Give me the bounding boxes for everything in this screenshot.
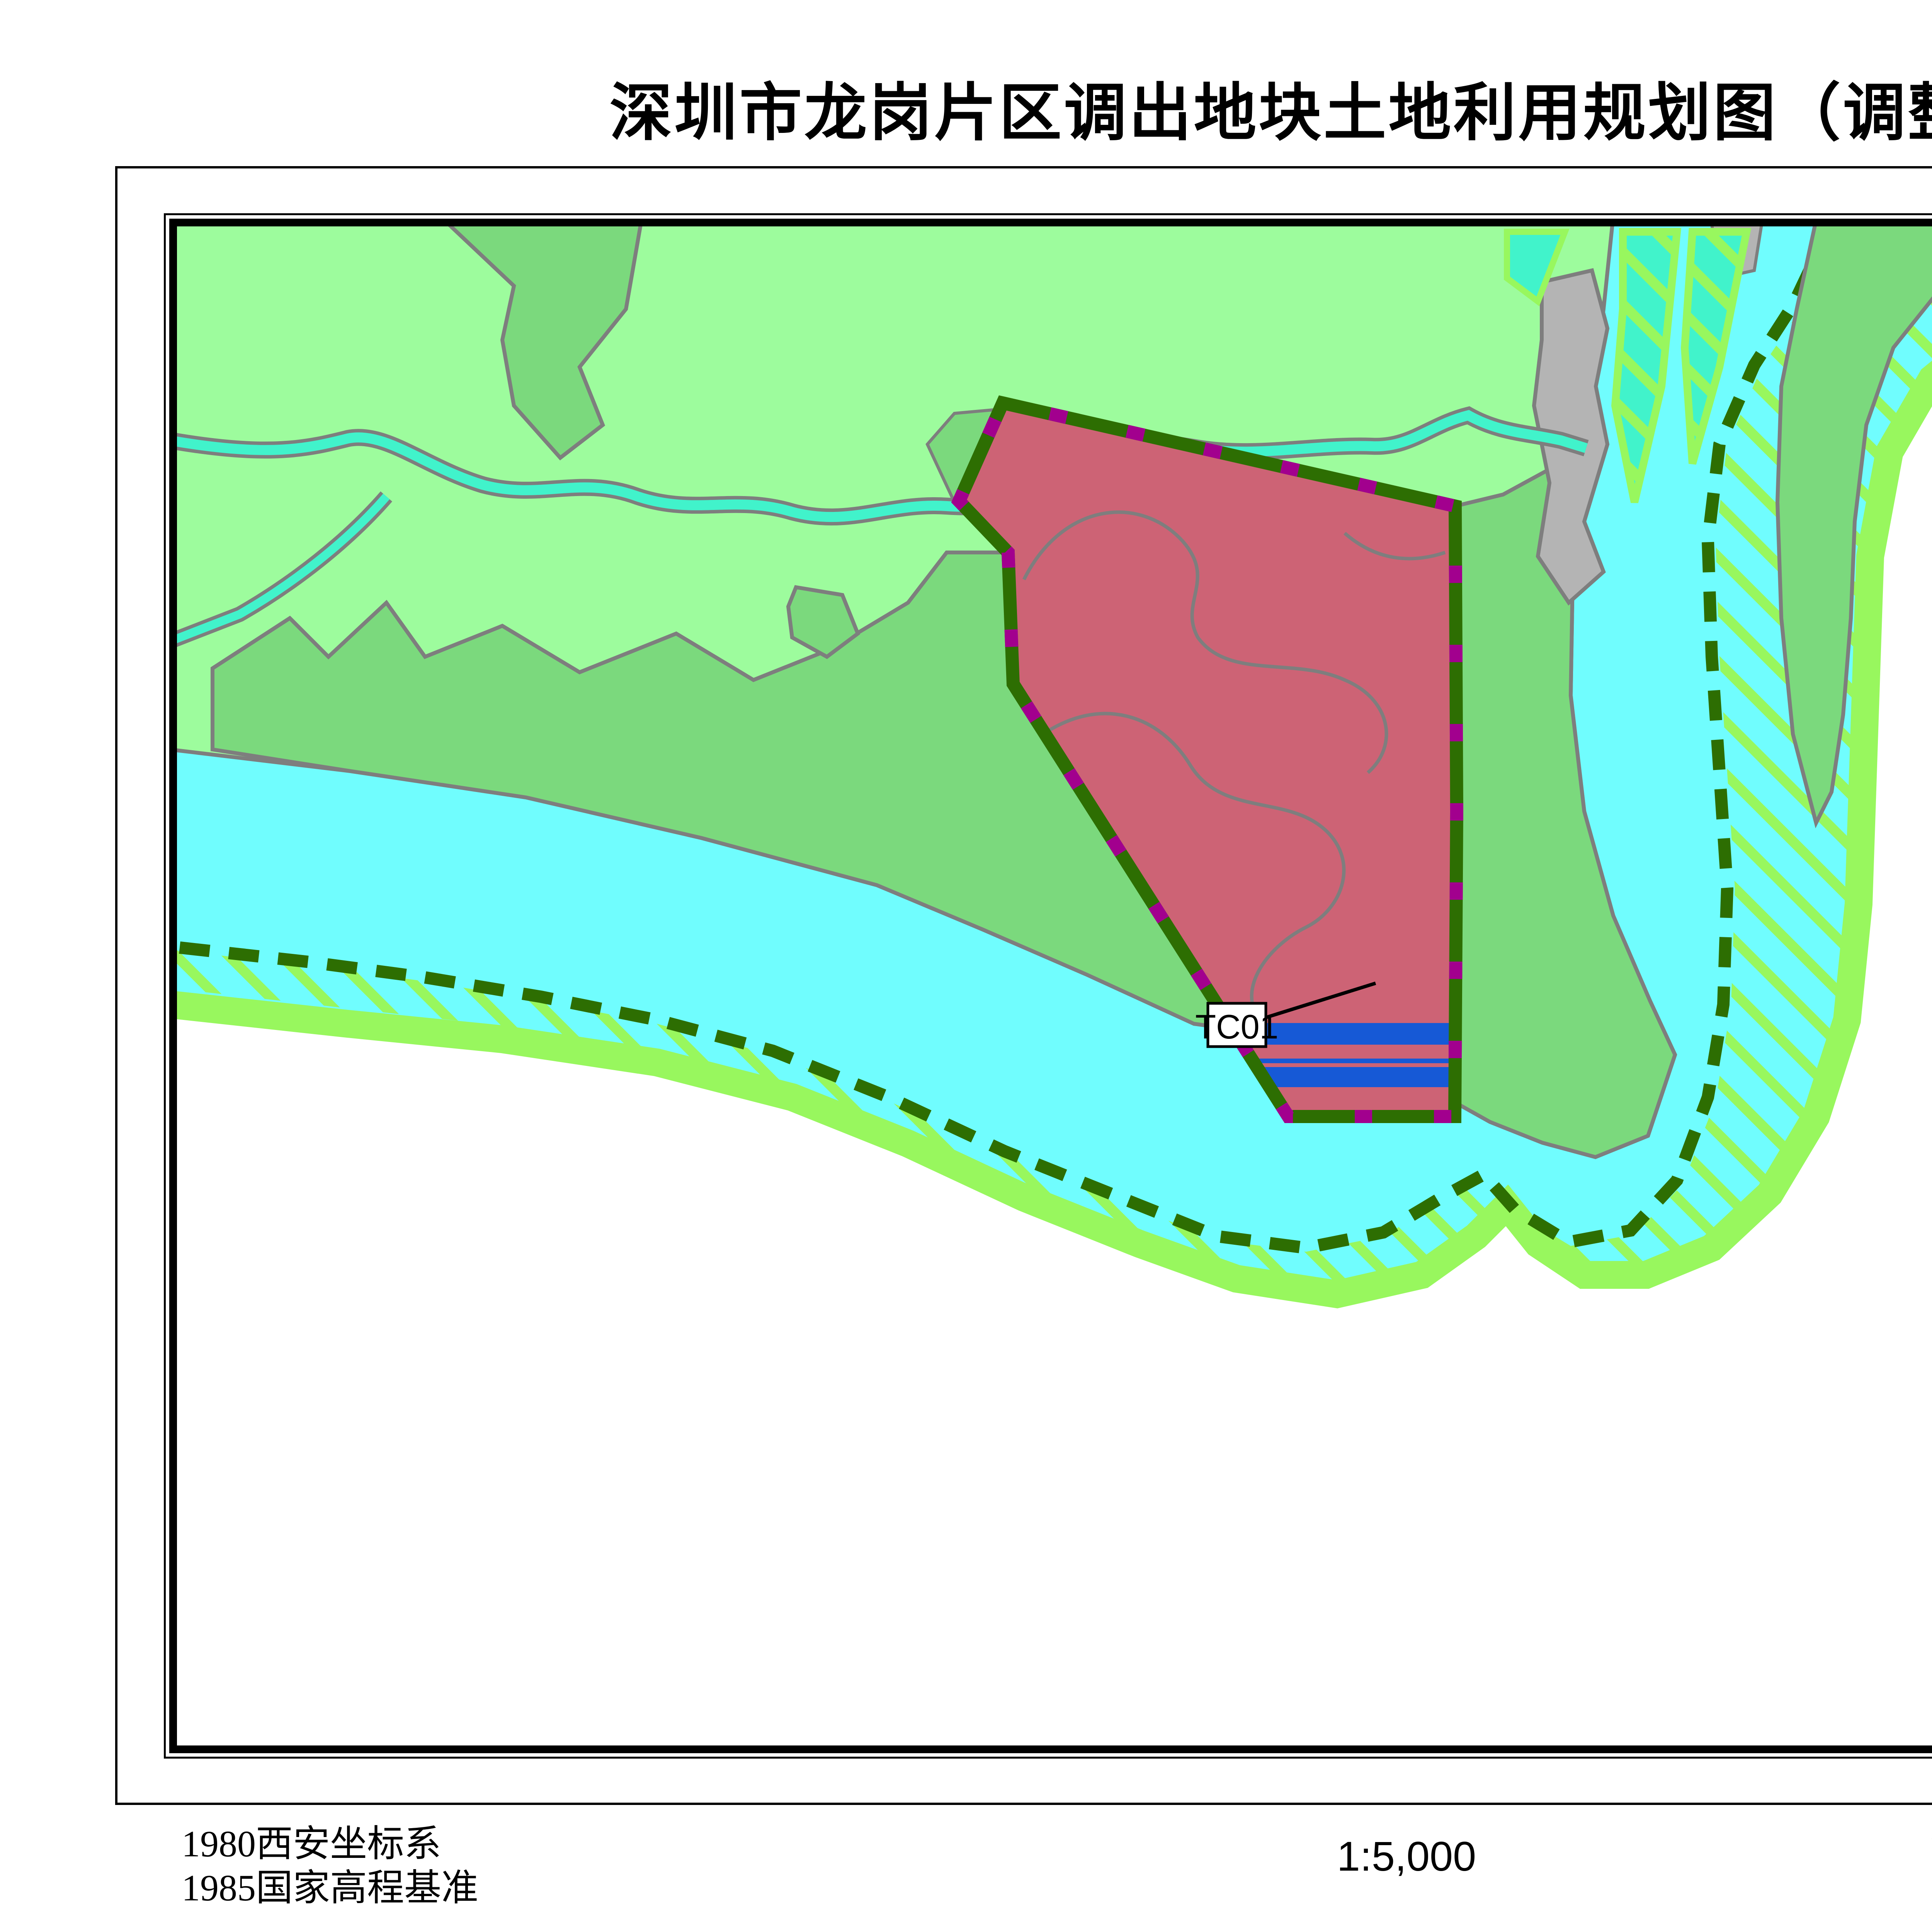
publisher-note: 深圳市规划和国土资源委员会滨海管理局 二零一五年十一月 (1924, 1822, 1932, 1915)
map-canvas: TC01 (177, 226, 1932, 1745)
plot-callout-label: TC01 (1195, 1008, 1278, 1046)
map-sheet: 深圳市龙岗片区调出地块土地利用规划图（调整前） (0, 0, 1932, 1917)
publisher-line1: 深圳市规划和国土资源委员会滨海管理局 (1924, 1822, 1932, 1868)
page-title: 深圳市龙岗片区调出地块土地利用规划图（调整前） (0, 62, 1932, 153)
map-frame: TC01 (164, 213, 1932, 1759)
coordinate-system-note: 1980西安坐标系 1985国家高程基准 (182, 1822, 478, 1910)
map-scale: 1:5,000 (1310, 1832, 1503, 1880)
coordinate-system-line2: 1985国家高程基准 (182, 1866, 478, 1910)
publisher-line2: 二零一五年十一月 (1924, 1868, 1932, 1915)
coordinate-system-line1: 1980西安坐标系 (182, 1822, 478, 1866)
